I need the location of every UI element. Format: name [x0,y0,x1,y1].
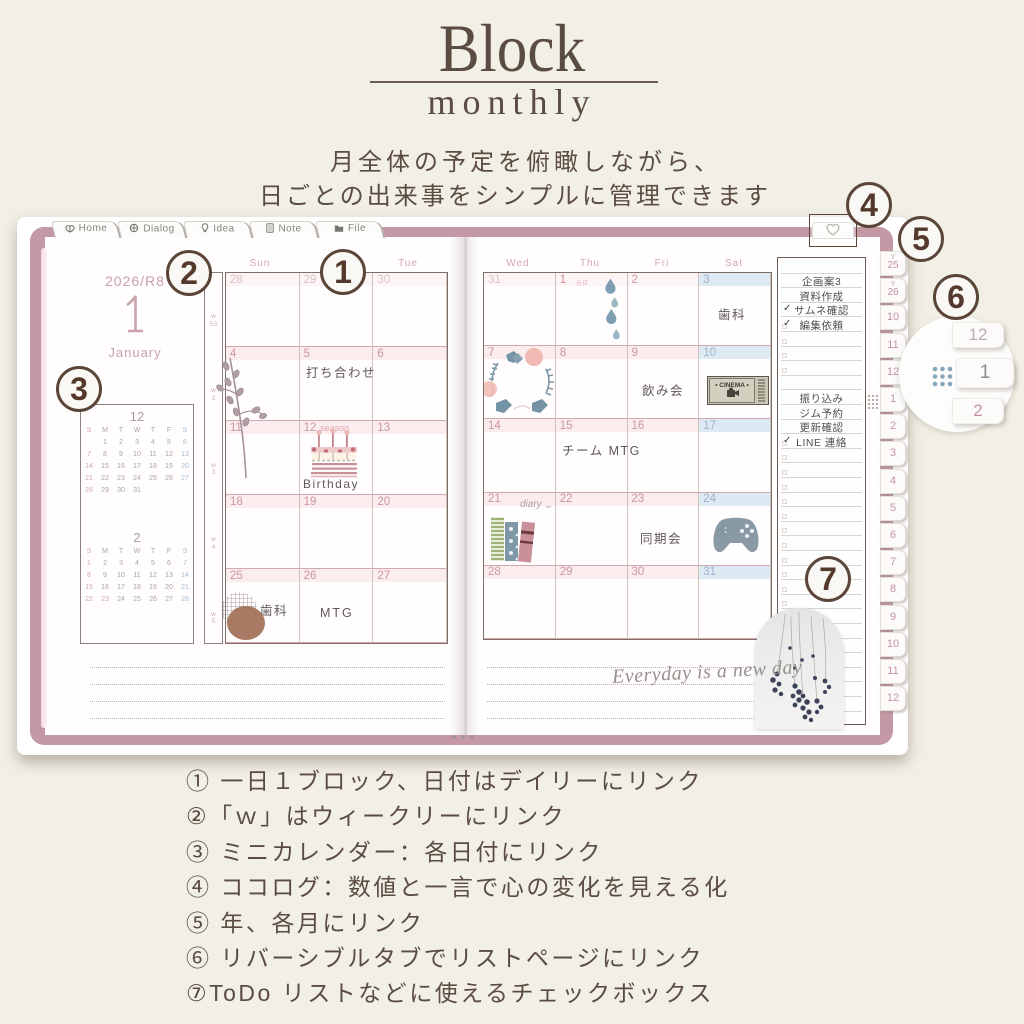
svg-text:• CINEMA •: • CINEMA • [715,382,749,389]
